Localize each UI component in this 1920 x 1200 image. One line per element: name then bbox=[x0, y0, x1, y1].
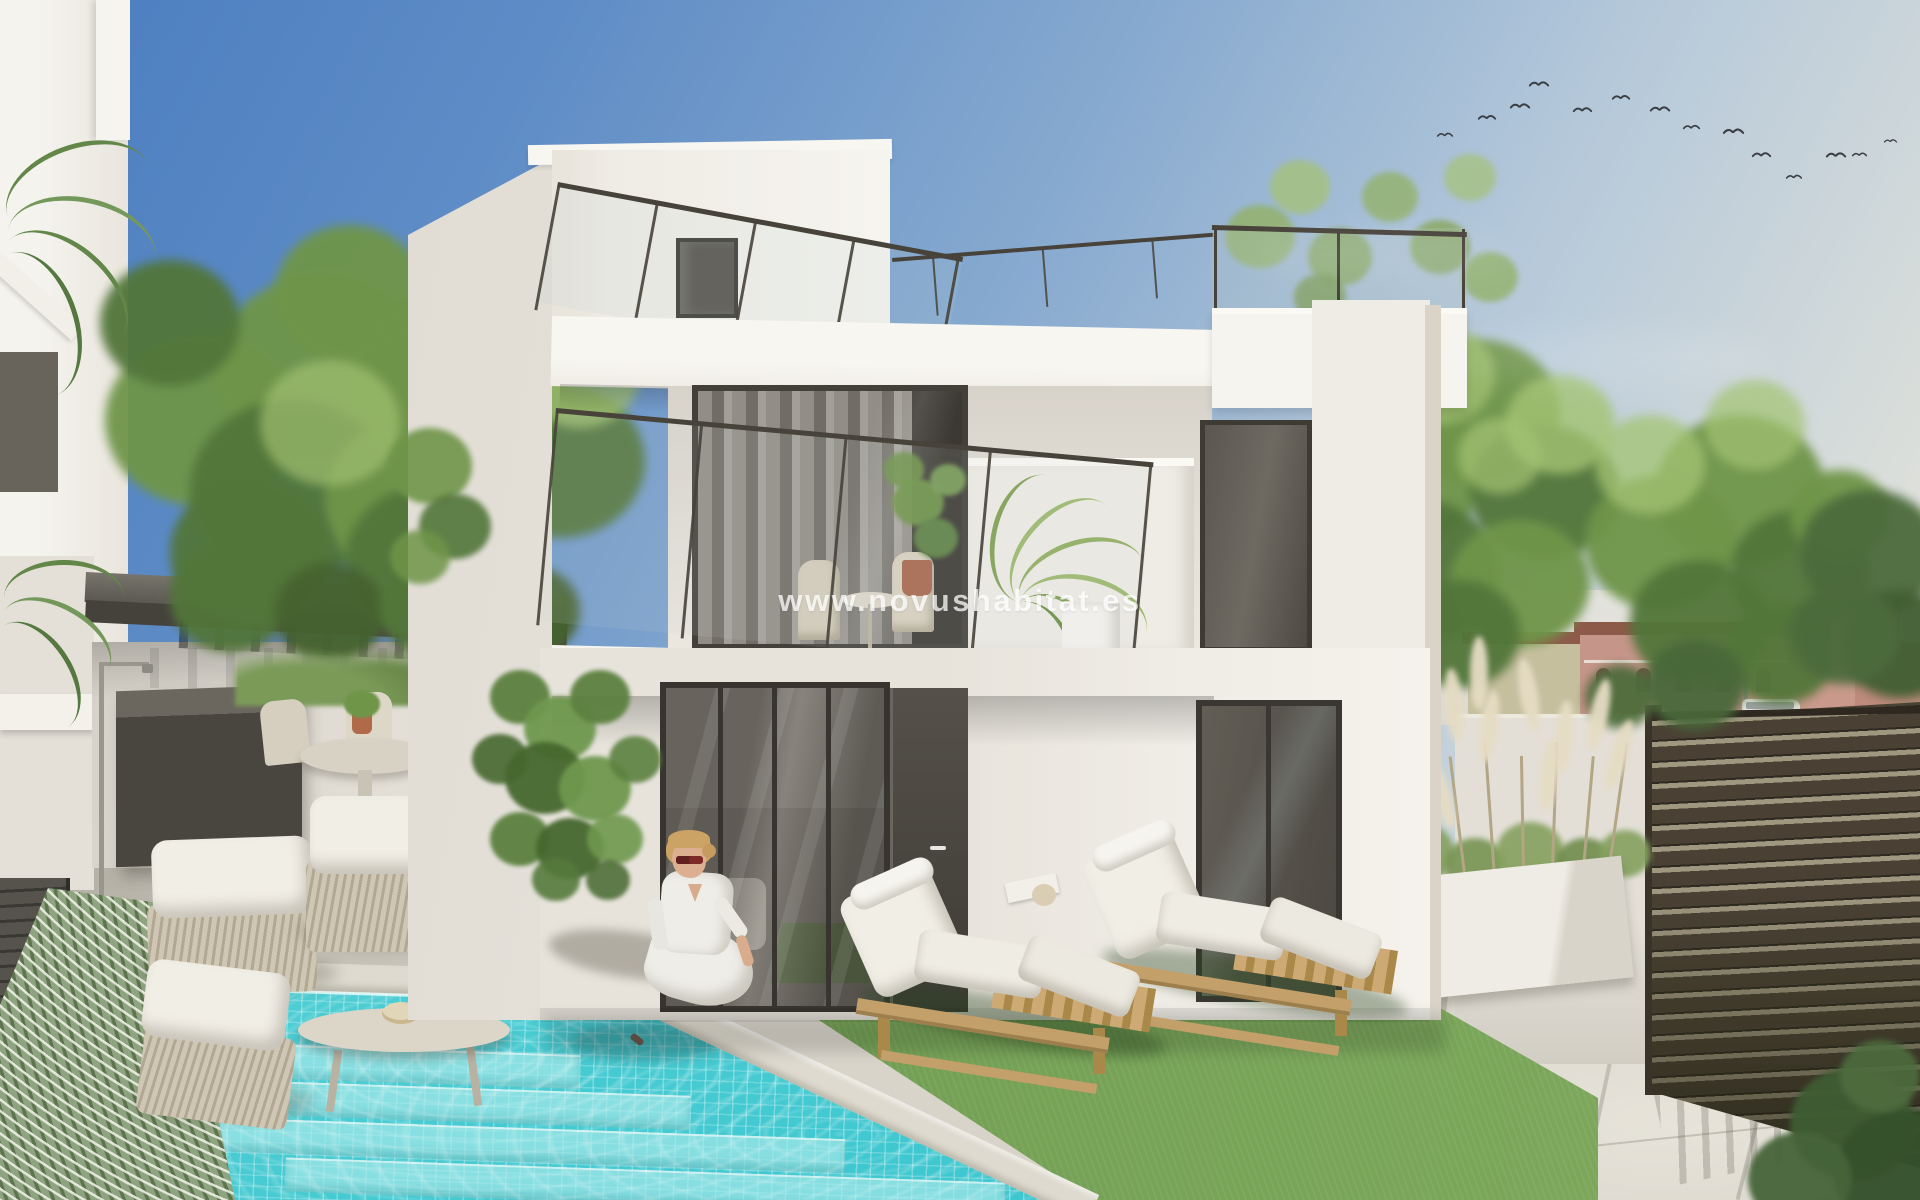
bird-icon bbox=[1437, 130, 1453, 138]
bird-icon bbox=[1723, 125, 1744, 136]
bird-icon bbox=[1612, 92, 1630, 101]
watermark-text: www.novushabitat.es bbox=[778, 583, 1141, 619]
bird-icon bbox=[1573, 104, 1592, 114]
villa-render-image: www.novushabitat.es bbox=[0, 0, 1920, 1200]
bird-icon bbox=[1683, 122, 1700, 131]
bird-icon bbox=[1478, 112, 1496, 121]
bird-icon bbox=[1786, 172, 1802, 180]
bird-icon bbox=[1650, 103, 1670, 113]
bird-icon bbox=[1826, 149, 1846, 159]
bird-icon bbox=[1884, 137, 1897, 144]
bird-icon bbox=[1852, 150, 1867, 158]
bird-icon bbox=[1510, 100, 1530, 110]
bird-icon bbox=[1529, 78, 1549, 88]
bird-icon bbox=[1752, 149, 1771, 159]
